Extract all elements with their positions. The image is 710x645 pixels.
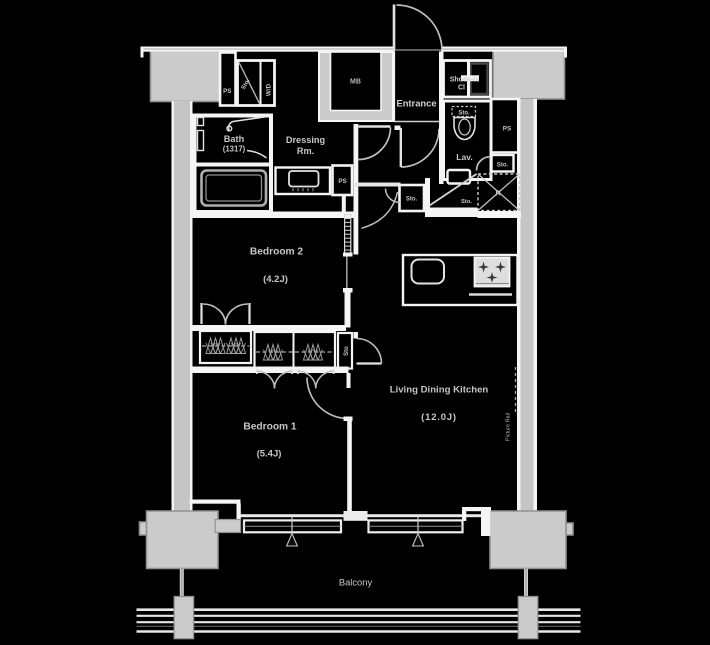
svg-text:Balcony: Balcony	[339, 577, 373, 588]
svg-text:Sto.: Sto.	[406, 197, 418, 203]
svg-text:Living Dining Kitchen: Living Dining Kitchen	[390, 385, 489, 396]
svg-text:Bedroom 1: Bedroom 1	[243, 422, 297, 433]
svg-text:PS: PS	[503, 126, 512, 133]
svg-text:R: R	[495, 191, 500, 198]
svg-text:(5.4J): (5.4J)	[257, 449, 282, 460]
svg-text:(1317): (1317)	[223, 145, 246, 154]
svg-text:W/D: W/D	[265, 83, 272, 96]
svg-text:Cl: Cl	[458, 85, 465, 92]
svg-text:Sto.: Sto.	[461, 199, 472, 205]
svg-text:(12.0J): (12.0J)	[421, 412, 457, 423]
svg-text:Shoes-In: Shoes-In	[450, 77, 480, 84]
svg-text:(4.2J): (4.2J)	[263, 274, 288, 285]
svg-text:Sto: Sto	[344, 346, 350, 356]
svg-text:Picture Rail: Picture Rail	[506, 413, 512, 441]
svg-text:Bedroom 2: Bedroom 2	[250, 247, 304, 258]
svg-text:Dressing: Dressing	[286, 135, 325, 145]
svg-text:Sto.: Sto.	[497, 162, 509, 168]
svg-text:Bath: Bath	[224, 134, 245, 144]
svg-text:PS: PS	[338, 178, 346, 185]
svg-text:Rm.: Rm.	[297, 146, 314, 156]
svg-text:Sto.: Sto.	[458, 110, 470, 116]
svg-text:MB: MB	[350, 79, 361, 86]
svg-text:Entrance: Entrance	[396, 98, 436, 109]
svg-text:Lav.: Lav.	[456, 152, 472, 162]
svg-text:PS: PS	[223, 88, 231, 95]
